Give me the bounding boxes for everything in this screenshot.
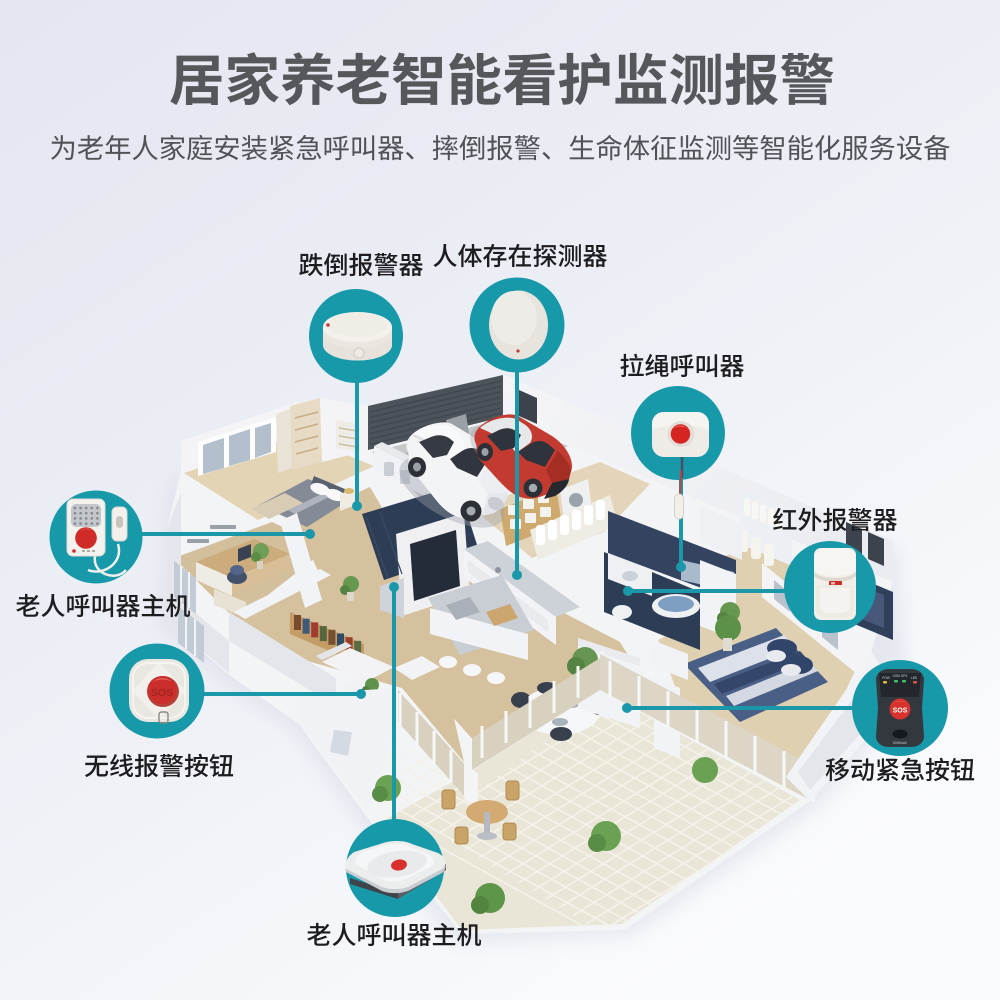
svg-text:LBS: LBS	[911, 676, 917, 680]
svg-text:POW: POW	[882, 676, 890, 680]
svg-text:SOS: SOS	[893, 708, 908, 715]
svg-text:SOS: SOS	[151, 687, 173, 699]
svg-text:8000mAh: 8000mAh	[893, 741, 907, 745]
svg-text:GSM GPS: GSM GPS	[893, 674, 908, 678]
